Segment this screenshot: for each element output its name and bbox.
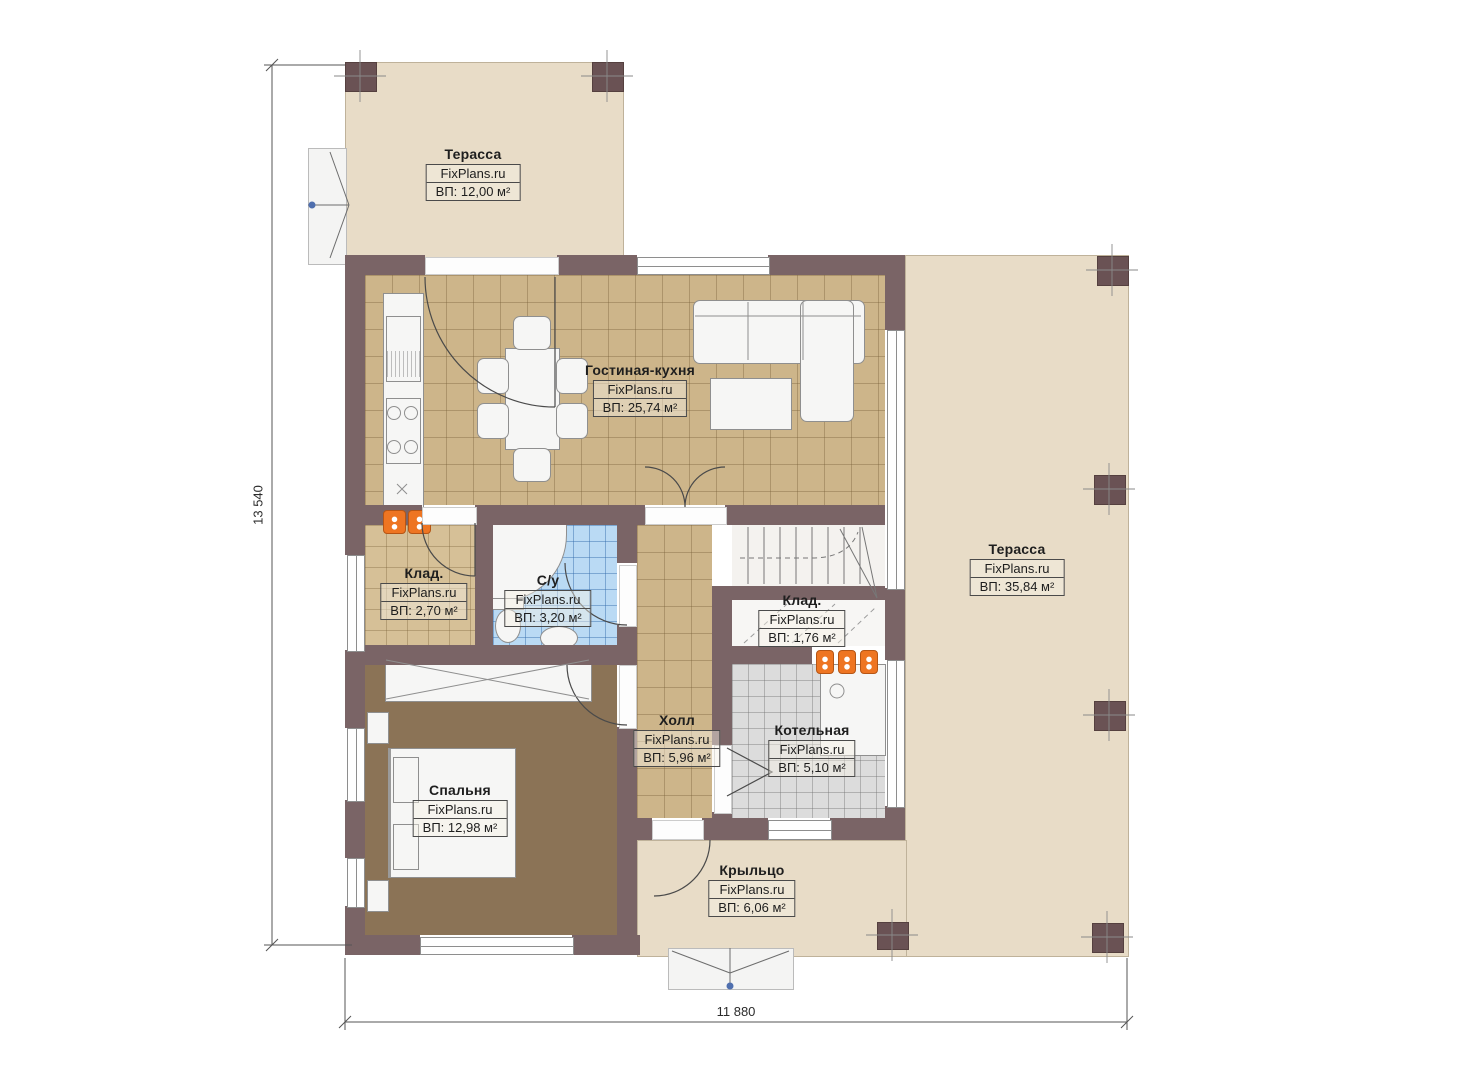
chair <box>477 358 509 394</box>
wall-segment <box>830 818 905 840</box>
window <box>420 937 574 955</box>
room-area: ВП: 5,96 м² <box>634 749 719 766</box>
window <box>887 330 905 590</box>
wall-segment <box>712 646 812 664</box>
room-name: Клад. <box>782 592 821 608</box>
room-area: ВП: 1,76 м² <box>759 629 844 646</box>
wall-segment <box>345 650 365 728</box>
terrace-post <box>345 62 377 92</box>
room-name: Котельная <box>774 722 849 738</box>
room-name: Гостиная-кухня <box>585 362 695 378</box>
kitchen-sink <box>386 316 421 382</box>
room-brand: FixPlans.ru <box>414 801 507 819</box>
room-label-bedroom: Спальня FixPlans.ru ВП: 12,98 м² <box>413 782 508 837</box>
wall-segment <box>885 588 905 660</box>
room-name: Клад. <box>404 565 443 581</box>
room-area: ВП: 5,10 м² <box>769 759 854 776</box>
door-opening <box>619 565 637 627</box>
door-opening <box>645 507 727 525</box>
room-name: Крыльцо <box>719 862 784 878</box>
room-label-bathroom: С/у FixPlans.ru ВП: 3,20 м² <box>504 572 591 627</box>
room-brand: FixPlans.ru <box>709 881 794 899</box>
window <box>347 858 365 908</box>
terrace-steps <box>308 148 347 265</box>
room-brand: FixPlans.ru <box>759 611 844 629</box>
room-label-storage-left: Клад. FixPlans.ru ВП: 2,70 м² <box>380 565 467 620</box>
wall-segment <box>345 255 365 555</box>
radiator <box>383 510 406 534</box>
window <box>637 257 770 275</box>
radiator <box>816 650 834 674</box>
wall-segment <box>365 645 617 665</box>
chair <box>556 358 588 394</box>
sofa-chaise <box>800 300 854 422</box>
room-area: ВП: 35,84 м² <box>971 578 1064 595</box>
chair <box>513 316 551 350</box>
door-opening <box>422 507 477 525</box>
room-brand: FixPlans.ru <box>971 560 1064 578</box>
room-area: ВП: 6,06 м² <box>709 899 794 916</box>
window <box>347 728 365 802</box>
chair <box>513 448 551 482</box>
wall-segment <box>885 255 905 330</box>
terrace-post <box>592 62 624 92</box>
room-name: Холл <box>659 712 695 728</box>
room-area: ВП: 25,74 м² <box>594 399 687 416</box>
room-name: Спальня <box>429 782 491 798</box>
door-opening <box>425 257 559 275</box>
room-area: ВП: 2,70 м² <box>381 602 466 619</box>
terrace-post <box>1092 923 1124 953</box>
dimension-horizontal: 11 880 <box>717 1004 756 1019</box>
dimension-vertical: 13 540 <box>251 485 266 525</box>
wall-segment <box>345 935 420 955</box>
room-brand: FixPlans.ru <box>505 591 590 609</box>
wall-segment <box>345 800 365 858</box>
radiator <box>860 650 878 674</box>
room-brand: FixPlans.ru <box>427 165 520 183</box>
room-brand: FixPlans.ru <box>594 381 687 399</box>
room-brand: FixPlans.ru <box>634 731 719 749</box>
door-opening <box>652 820 704 840</box>
radiator <box>838 650 856 674</box>
wall-segment <box>557 255 637 275</box>
room-brand: FixPlans.ru <box>381 584 466 602</box>
staircase <box>732 525 885 586</box>
nightstand <box>367 712 389 744</box>
room-area: ВП: 12,98 м² <box>414 819 507 836</box>
wall-segment <box>475 525 493 645</box>
wall-segment <box>617 505 637 563</box>
room-label-living-kitchen: Гостиная-кухня FixPlans.ru ВП: 25,74 м² <box>585 362 695 417</box>
wall-segment <box>617 625 637 665</box>
chair <box>477 403 509 439</box>
terrace-post <box>1094 701 1126 731</box>
room-name: С/у <box>537 572 559 588</box>
room-label-terrace-right: Терасса FixPlans.ru ВП: 35,84 м² <box>970 541 1065 596</box>
room-name: Терасса <box>445 146 502 162</box>
dining-table <box>505 348 560 450</box>
floor-plan: Терасса FixPlans.ru ВП: 12,00 м² Гостина… <box>0 0 1474 1080</box>
wall-segment <box>702 818 768 840</box>
hall-floor <box>637 525 712 818</box>
porch-steps <box>668 948 794 990</box>
room-brand: FixPlans.ru <box>769 741 854 759</box>
coffee-table <box>710 378 792 430</box>
room-label-terrace-top: Терасса FixPlans.ru ВП: 12,00 м² <box>426 146 521 201</box>
room-area: ВП: 12,00 м² <box>427 183 520 200</box>
porch-post <box>877 922 909 950</box>
room-name: Терасса <box>989 541 1046 557</box>
nightstand <box>367 880 389 912</box>
window <box>887 660 905 808</box>
room-label-boiler: Котельная FixPlans.ru ВП: 5,10 м² <box>768 722 855 777</box>
window <box>347 555 365 652</box>
wall-segment <box>725 505 885 525</box>
room-label-porch: Крыльцо FixPlans.ru ВП: 6,06 м² <box>708 862 795 917</box>
terrace-right-floor <box>905 255 1129 957</box>
room-label-storage-right: Клад. FixPlans.ru ВП: 1,76 м² <box>758 592 845 647</box>
chair <box>556 403 588 439</box>
room-label-hall: Холл FixPlans.ru ВП: 5,96 м² <box>633 712 720 767</box>
stove <box>386 398 421 464</box>
terrace-post <box>1094 475 1126 505</box>
terrace-post <box>1097 256 1129 286</box>
window <box>768 820 832 840</box>
room-area: ВП: 3,20 м² <box>505 609 590 626</box>
